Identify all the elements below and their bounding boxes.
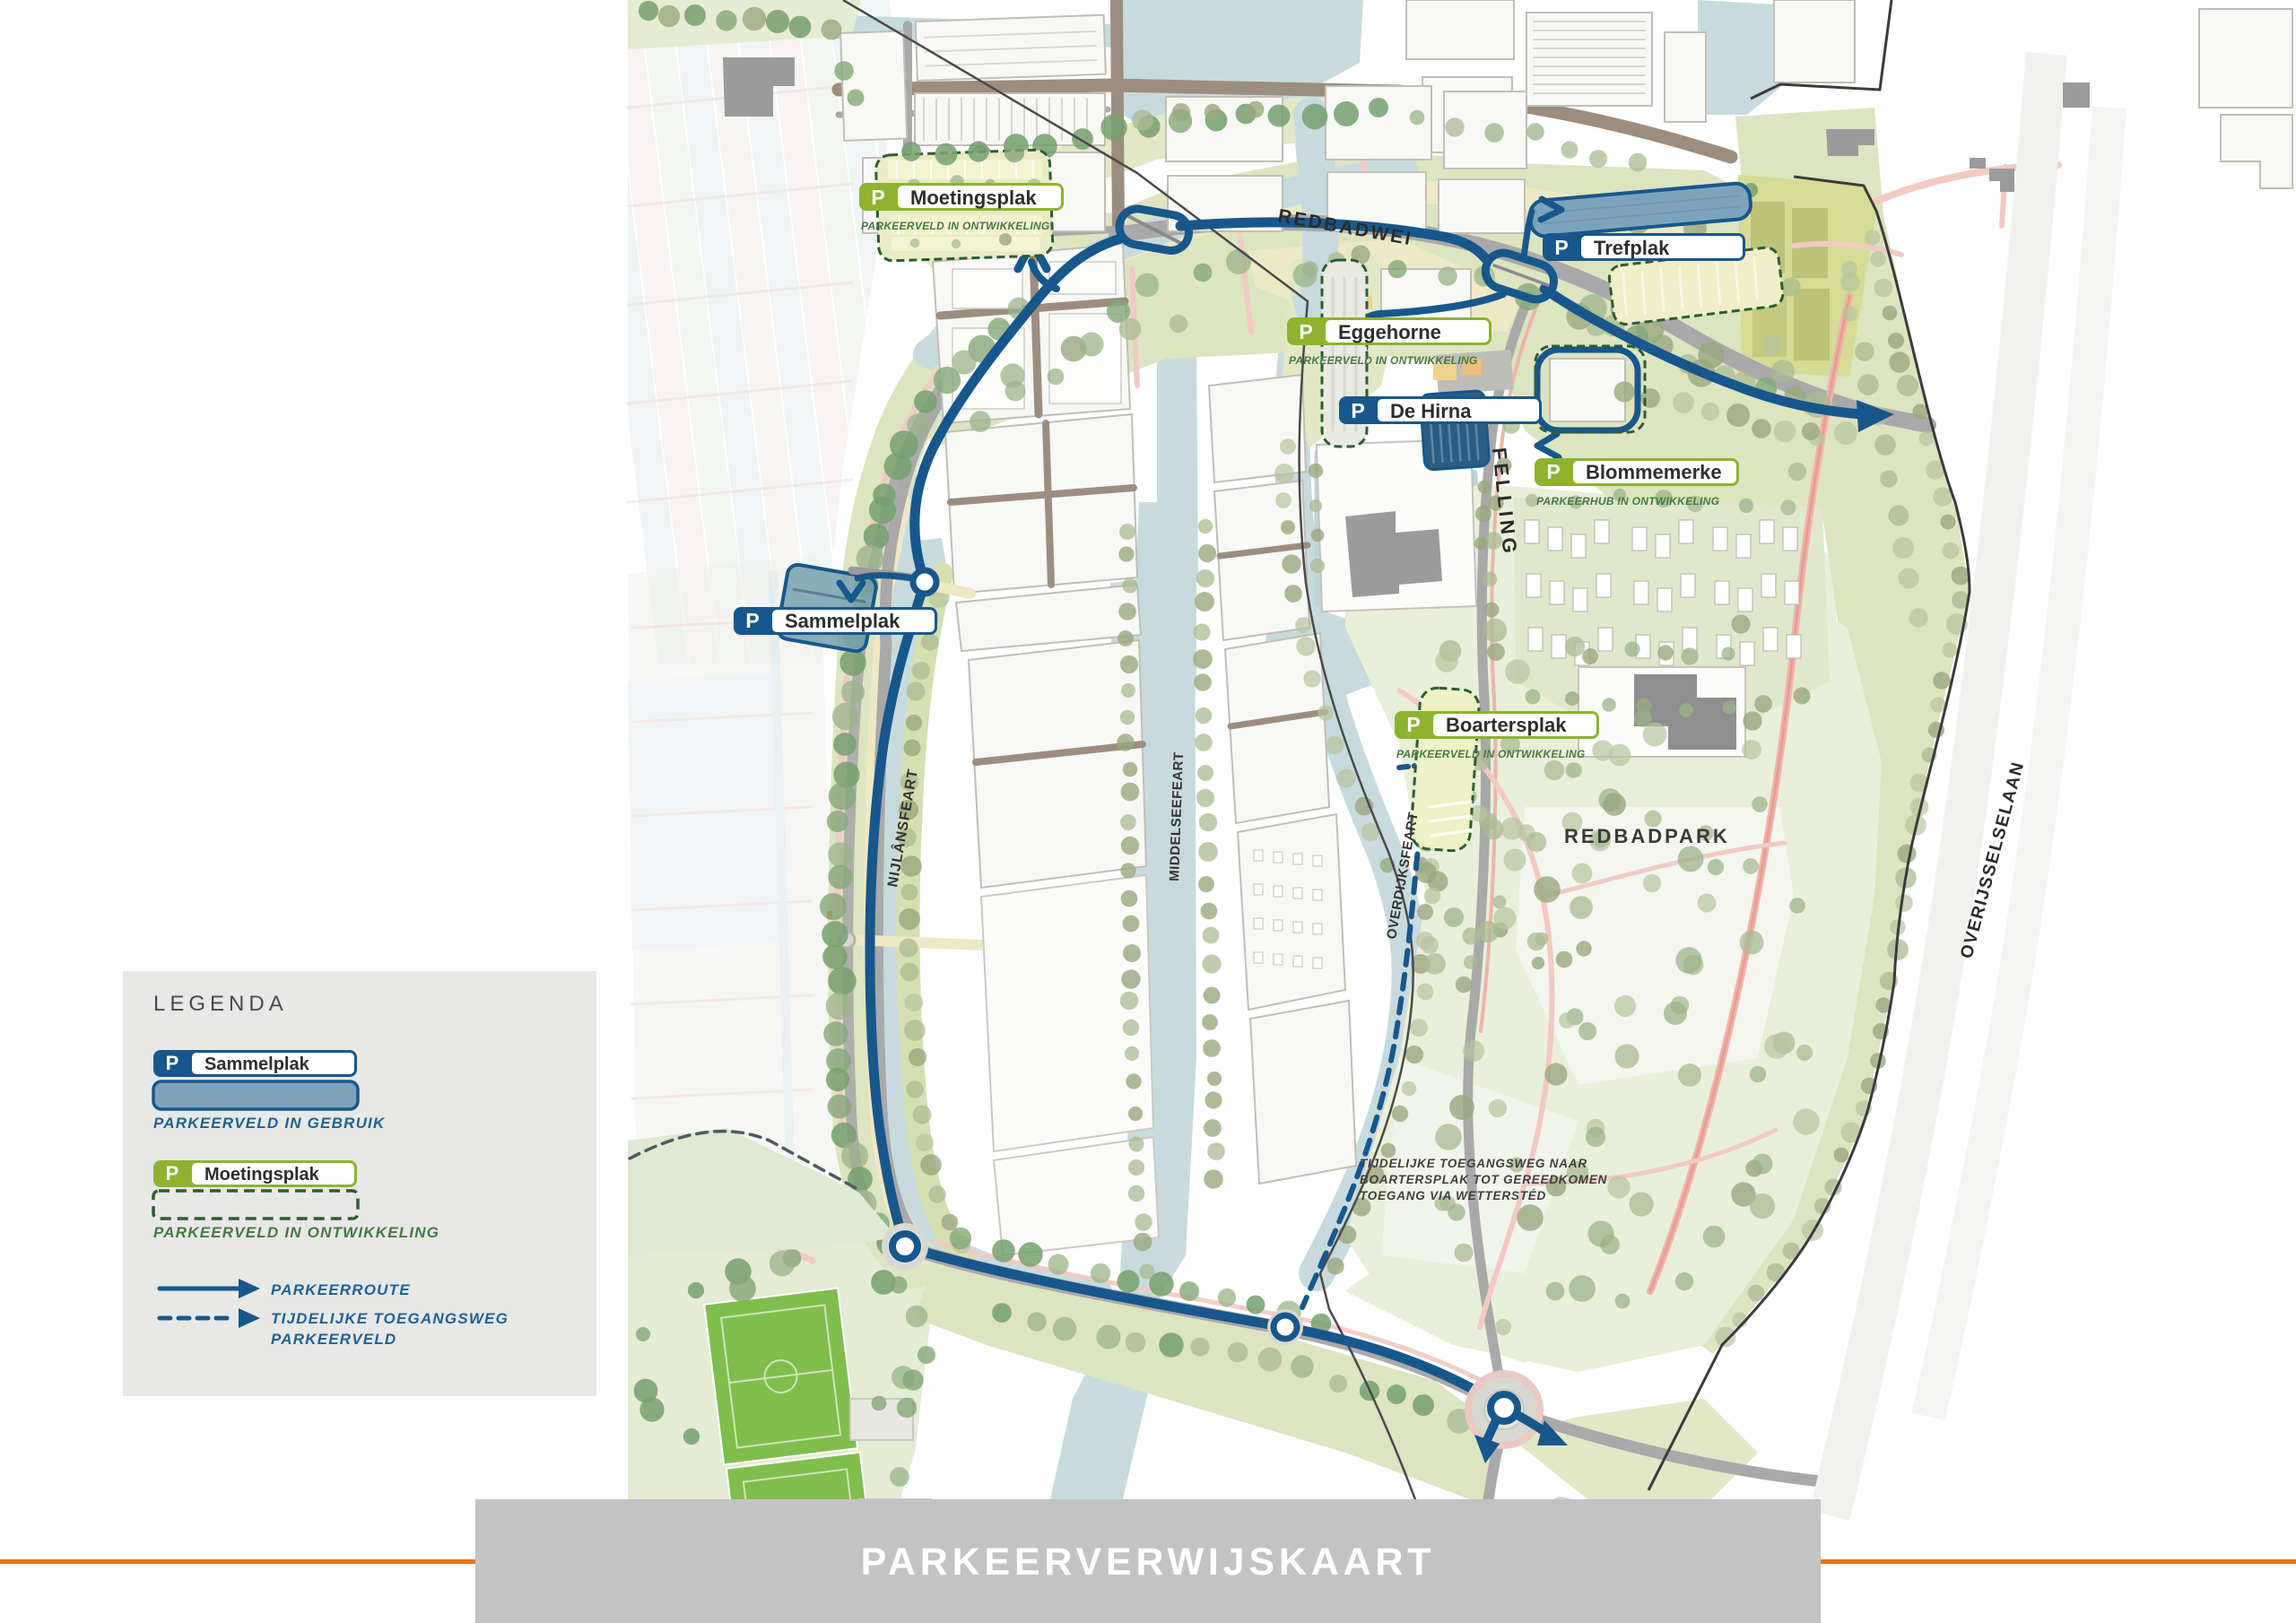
svg-text:P: P bbox=[1554, 236, 1568, 259]
svg-text:PARKEERVELD IN ONTWIKKELING: PARKEERVELD IN ONTWIKKELING bbox=[153, 1224, 439, 1241]
svg-text:Trefplak: Trefplak bbox=[1594, 237, 1670, 259]
svg-text:Boartersplak: Boartersplak bbox=[1446, 714, 1567, 736]
svg-text:P: P bbox=[1351, 399, 1364, 422]
svg-text:Moetingsplak: Moetingsplak bbox=[204, 1165, 320, 1185]
svg-text:REDBADPARK: REDBADPARK bbox=[1564, 825, 1730, 847]
svg-text:PARKEERVERWIJSKAART: PARKEERVERWIJSKAART bbox=[861, 1541, 1436, 1584]
svg-text:PARKEERROUTE: PARKEERROUTE bbox=[271, 1281, 411, 1298]
svg-text:PARKEERHUB IN ONTWIKKELING: PARKEERHUB IN ONTWIKKELING bbox=[1536, 495, 1719, 508]
svg-text:De Hirna: De Hirna bbox=[1390, 400, 1472, 422]
svg-text:TIJDELIJKE TOEGANGSWEG: TIJDELIJKE TOEGANGSWEG bbox=[271, 1310, 509, 1327]
svg-text:PARKEERVELD IN ONTWIKKELING: PARKEERVELD IN ONTWIKKELING bbox=[1289, 354, 1478, 367]
svg-text:PARKEERVELD IN ONTWIKKELING: PARKEERVELD IN ONTWIKKELING bbox=[861, 220, 1050, 232]
svg-text:P: P bbox=[166, 1052, 179, 1074]
svg-text:P: P bbox=[871, 186, 884, 209]
svg-text:PARKEERVELD IN GEBRUIK: PARKEERVELD IN GEBRUIK bbox=[153, 1115, 386, 1132]
svg-text:TIJDELIJKE TOEGANGSWEG NAAR: TIJDELIJKE TOEGANGSWEG NAAR bbox=[1360, 1157, 1587, 1170]
svg-text:P: P bbox=[1546, 460, 1560, 483]
svg-text:P: P bbox=[1406, 713, 1420, 736]
svg-text:Sammelplak: Sammelplak bbox=[785, 610, 900, 632]
svg-text:PARKEERVELD IN ONTWIKKELING: PARKEERVELD IN ONTWIKKELING bbox=[1396, 748, 1586, 760]
svg-text:Moetingsplak: Moetingsplak bbox=[910, 187, 1037, 209]
svg-text:P: P bbox=[745, 609, 759, 632]
svg-text:TOEGANG VIA WETTERSTÉD: TOEGANG VIA WETTERSTÉD bbox=[1360, 1189, 1546, 1202]
svg-text:Sammelplak: Sammelplak bbox=[204, 1055, 310, 1074]
svg-text:Blommemerke: Blommemerke bbox=[1586, 461, 1722, 483]
svg-text:BOARTERSPLAK TOT GEREEDKOMEN: BOARTERSPLAK TOT GEREEDKOMEN bbox=[1360, 1173, 1607, 1186]
svg-text:P: P bbox=[166, 1162, 179, 1185]
svg-text:P: P bbox=[1299, 320, 1312, 343]
svg-text:LEGENDA: LEGENDA bbox=[153, 992, 288, 1016]
svg-text:Eggehorne: Eggehorne bbox=[1338, 321, 1441, 343]
svg-text:PARKEERVELD: PARKEERVELD bbox=[271, 1331, 396, 1348]
